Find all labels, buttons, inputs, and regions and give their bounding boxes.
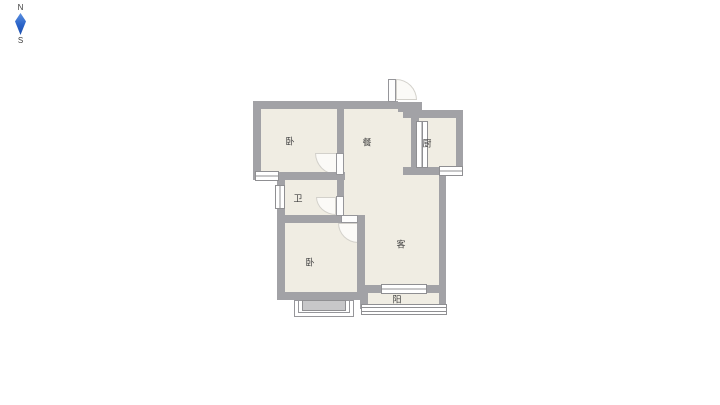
- door-leaf: [336, 153, 344, 175]
- wall: [277, 222, 285, 300]
- floorplan-page: N S 卧餐厨卫卧客阳: [0, 0, 720, 405]
- wall: [357, 215, 365, 292]
- room-label-bedroom-1: 卧: [285, 135, 294, 148]
- wall: [277, 215, 342, 223]
- compass-north-label: N: [12, 3, 29, 12]
- door-leaf: [336, 196, 344, 216]
- balcony-door-window: [381, 284, 427, 294]
- wall: [456, 110, 463, 174]
- room-label-balcony: 阳: [392, 293, 401, 306]
- room-label-dining: 餐: [362, 136, 371, 149]
- wall: [253, 101, 261, 180]
- door-swing-arc: [396, 79, 417, 100]
- wall: [425, 285, 441, 293]
- window: [439, 166, 463, 176]
- balcony-window: [361, 304, 447, 315]
- room-label-kitchen: 厨: [422, 137, 431, 150]
- compass: N S: [12, 3, 29, 45]
- compass-needle-icon: [15, 13, 26, 35]
- room-label-living: 客: [396, 238, 405, 251]
- wall: [277, 292, 365, 300]
- wall: [337, 175, 344, 197]
- window: [275, 185, 285, 209]
- door-leaf: [341, 215, 358, 223]
- wall: [337, 101, 344, 153]
- window: [255, 171, 279, 181]
- room-label-bedroom-2: 卧: [305, 256, 314, 269]
- door-leaf: [388, 79, 396, 102]
- room-label-bathroom: 卫: [293, 192, 302, 205]
- bay-window-sill: [302, 300, 346, 311]
- compass-south-label: S: [12, 36, 29, 45]
- wall: [253, 101, 398, 109]
